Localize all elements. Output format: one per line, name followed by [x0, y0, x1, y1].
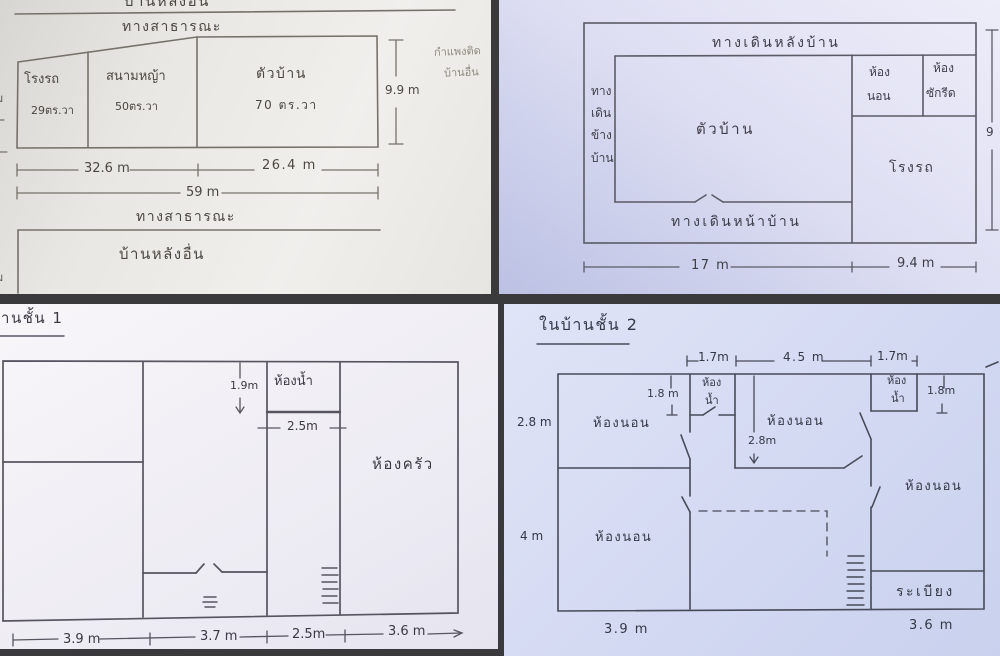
garage-layout-label: โรงรถ [889, 160, 934, 176]
left-edge-partial-ticks [0, 120, 7, 152]
walkway-side-label: ทาง เดิน ข้าง บ้าน [591, 80, 614, 169]
floor1-dim-bottom-1: 3.9 m [63, 633, 100, 648]
floor2-bath-left-label-line2: น้ำ [705, 395, 719, 408]
wall-note-line1: กำแพงติด [434, 45, 481, 59]
floor2-dim-bottom-left: 3.9 m [604, 623, 649, 638]
floor1-door-swing [196, 564, 222, 573]
floor1-dim-bottom-4: 3.6 m [388, 625, 425, 640]
floor1-dim-bottom-3: 2.5m [292, 628, 325, 643]
floor2-mid-dim-arrow [750, 376, 758, 463]
floor2-bedroom-upper-left-label: ห้องนอน [593, 417, 650, 432]
bedroom-label-line2: นอน [867, 90, 891, 104]
floor2-dim-bottom-right: 3.6 m [909, 619, 954, 634]
floor2-bath-left-label-line1: ห้อง [702, 377, 721, 390]
neighbor-top-boundary-line [15, 10, 455, 14]
garage-area-value: 29ตร.วา [31, 105, 74, 118]
floor-plan-photo-collage: บ้านหลังอื่น ทางสาธารณะ โรงรถ 29ตร.วา สน… [0, 0, 1000, 656]
neighbor-house-top-label: บ้านหลังอื่น [124, 0, 210, 10]
floor2-dim-top-2: 4.5 m [783, 351, 825, 365]
floor1-bathroom-label: ห้องน้ำ [274, 375, 313, 390]
floor2-dim-mid: 2.8m [748, 435, 776, 448]
house-body-label: ตัวบ้าน [696, 121, 755, 138]
dim-house-width-value: 17 m [691, 259, 730, 274]
walkway-front-label: ทางเดินหน้าบ้าน [671, 214, 801, 230]
floor2-balcony-label: ระเบียง [896, 584, 955, 600]
lawn-area-value: 50ตร.วา [115, 101, 158, 114]
lawn-label: สนามหญ้า [106, 70, 166, 85]
floor2-bath-right-label-line1: ห้อง [887, 375, 906, 388]
site-plan-lines [0, 0, 491, 294]
walkway-back-label: ทางเดินหลังบ้าน [712, 35, 840, 51]
dimension-line-width [17, 164, 378, 176]
floor2-dim-left-lower: 4 m [520, 530, 543, 544]
house-area-value: 70 ตร.วา [255, 99, 318, 113]
front-door-notch [695, 195, 723, 202]
floor2-dim-left-upper: 2.8 m [517, 416, 552, 430]
site-plan-photo: บ้านหลังอื่น ทางสาธารณะ โรงรถ 29ตร.วา สน… [0, 0, 491, 294]
floor1-title: บ้านชั้น 1 [0, 310, 63, 327]
left-edge-partial-text-1: ม [0, 93, 3, 106]
public-road-bottom-label: ทางสาธารณะ [136, 209, 236, 225]
floor1-inner-walls [3, 362, 340, 617]
floor2-right-door-swings [860, 413, 880, 507]
house-label: ตัวบ้าน [256, 66, 307, 82]
floor2-top-right-tick [986, 362, 998, 367]
floor1-plan-photo: บ้านชั้น 1 1.9m ห้องน้ำ 2.5m ห้องครัว 3.… [0, 304, 498, 649]
floor1-stairs-hatch [203, 568, 338, 607]
neighbor-house-bottom-label: บ้านหลังอื่น [119, 246, 205, 263]
floor2-mid-door-swing [844, 456, 862, 468]
floor2-bedroom-lower-left-label: ห้องนอน [595, 531, 652, 546]
dim-garage-width-value: 9.4 m [897, 257, 934, 272]
floor2-dashed-partition [699, 511, 827, 556]
floor2-bath-left-door-swing [703, 407, 715, 415]
floor2-bedroom-middle-label: ห้องนอน [767, 415, 824, 430]
floor2-bath-right-label-line2: น้ำ [891, 393, 905, 406]
garage-label: โรงรถ [24, 73, 59, 88]
right-edge-partial-value: 9 [986, 126, 994, 140]
floor2-plan-photo: ในบ้านชั้น 2 1.7m 4.5 m 1.7m 2.8 m 4 m 1… [504, 304, 1000, 656]
laundry-label-line1: ห้อง [933, 62, 954, 76]
dim-depth-value: 9.9 m [385, 84, 420, 98]
left-edge-partial-text-2: ม [0, 272, 3, 285]
floor2-dim-top-3: 1.7m [877, 350, 908, 364]
dim-total-width-value: 59 m [186, 186, 219, 201]
floor2-title: ในบ้านชั้น 2 [539, 316, 638, 336]
floor2-bedroom-right-label: ห้องนอน [905, 480, 962, 495]
floor2-dim-bath-right: 1.8m [927, 385, 955, 398]
floor1-bath-width-value: 2.5m [287, 420, 318, 434]
site-plot-outline [17, 36, 378, 148]
floor1-dim-bottom-2: 3.7 m [200, 630, 237, 645]
dim-house-value: 26.4 m [262, 159, 317, 174]
dim-garage-lawn-value: 32.6 m [84, 162, 130, 177]
floor2-dim-bath-left: 1.8 m [647, 388, 679, 401]
floor2-left-door-swings [681, 435, 690, 512]
wall-note-line2: บ้านอื่น [444, 66, 479, 80]
floor2-dim-top-1: 1.7m [698, 351, 729, 365]
floor1-kitchen-label: ห้องครัว [372, 456, 434, 473]
floor2-stairs-hatch [847, 556, 865, 605]
bedroom-label-line1: ห้อง [869, 66, 890, 80]
laundry-label-line2: ซักรีด [926, 87, 956, 101]
public-road-top-label: ทางสาธารณะ [122, 19, 222, 35]
floor1-plan-lines [0, 304, 498, 649]
house-layout-photo: ทางเดินหลังบ้าน ทาง เดิน ข้าง บ้าน ตัวบ้… [499, 0, 1000, 294]
floor1-outer-wall [3, 361, 458, 621]
floor1-bath-depth-value: 1.9m [230, 380, 258, 393]
